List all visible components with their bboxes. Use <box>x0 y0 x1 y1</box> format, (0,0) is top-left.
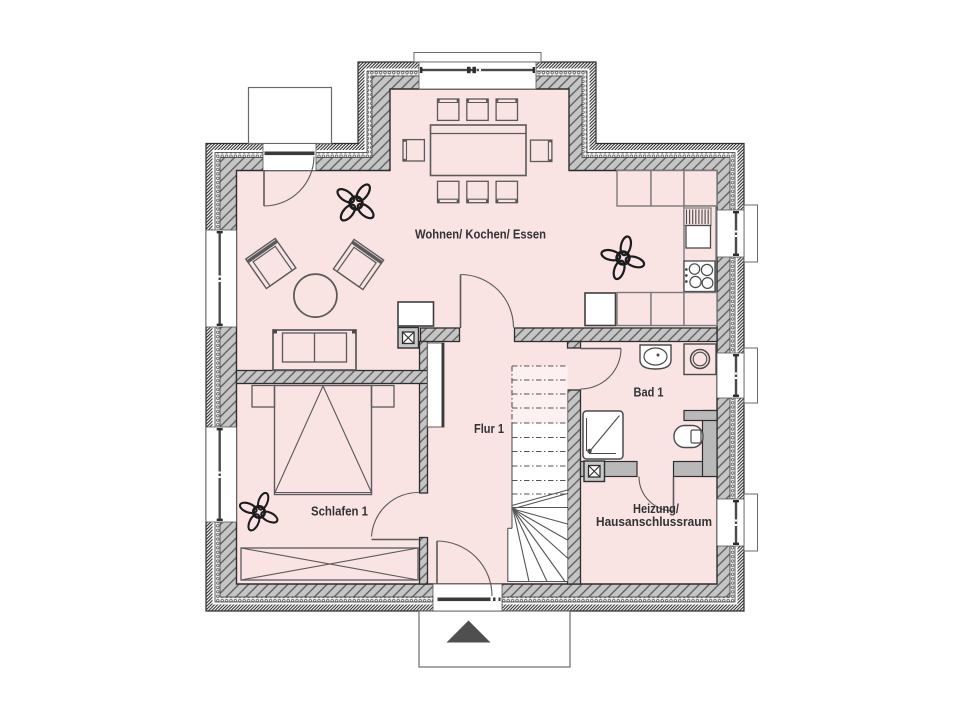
svg-text:Bad 1: Bad 1 <box>634 385 664 400</box>
svg-text:Flur 1: Flur 1 <box>474 421 504 436</box>
svg-text:Schlafen 1: Schlafen 1 <box>311 504 368 519</box>
svg-text:Wohnen/ Kochen/ Essen: Wohnen/ Kochen/ Essen <box>415 227 546 242</box>
svg-text:Hausanschlussraum: Hausanschlussraum <box>596 514 712 529</box>
